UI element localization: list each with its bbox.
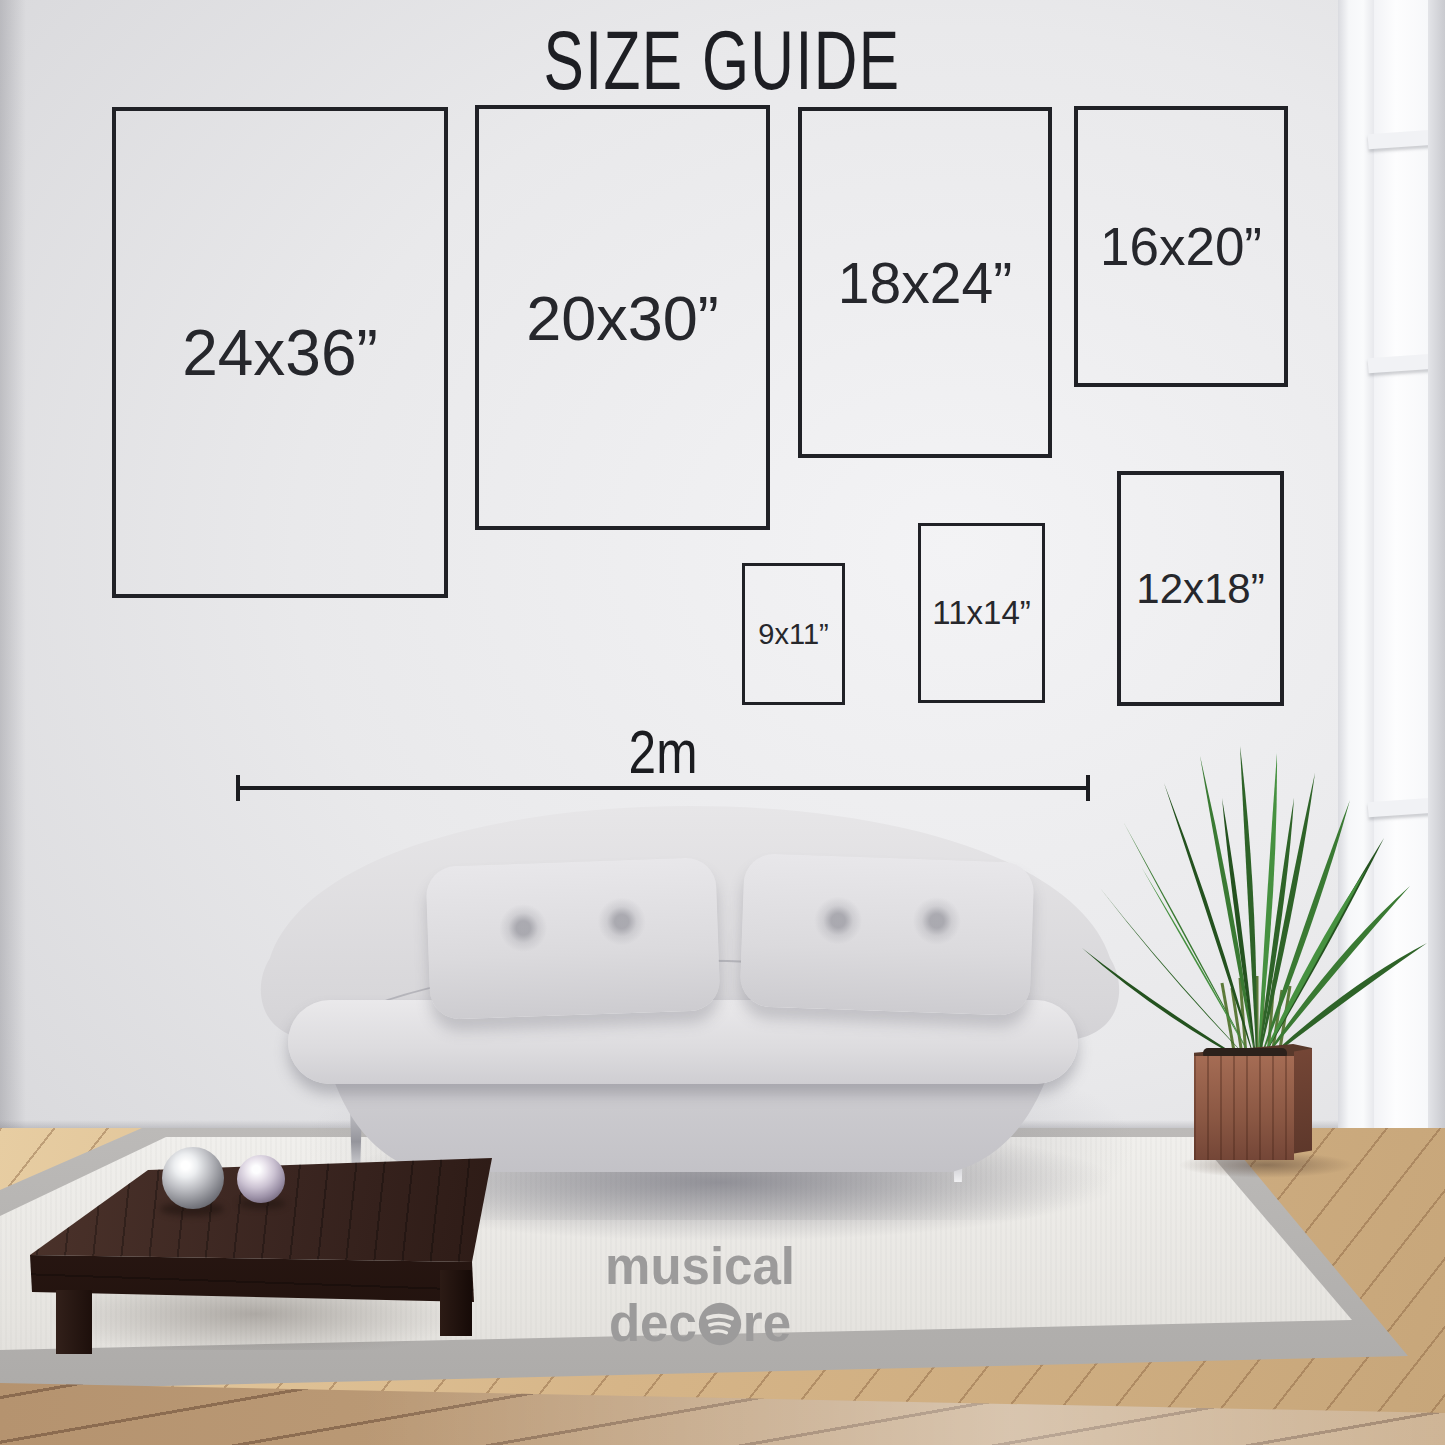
size-label-20x30: 20x30” (526, 282, 719, 354)
table-leg (56, 1290, 92, 1354)
spotify-icon (697, 1301, 743, 1347)
sofa-pillow-left (425, 857, 720, 1020)
brand-word-decore-prefix: dec (609, 1295, 697, 1352)
size-frame-11x14: 11x14” (918, 523, 1045, 703)
scale-bar-label: 2m (236, 716, 1090, 787)
size-label-12x18: 12x18” (1136, 565, 1264, 613)
size-label-18x24: 18x24” (838, 250, 1012, 316)
brand-logo: musical dec re (450, 1240, 950, 1350)
size-frame-18x24: 18x24” (798, 107, 1052, 458)
size-frame-24x36: 24x36” (112, 107, 448, 598)
wall-left-corner-shading (0, 0, 26, 1130)
planter-box-side (1294, 1048, 1312, 1153)
planter-box (1194, 1056, 1294, 1160)
size-frame-9x11: 9x11” (742, 563, 845, 705)
brand-word-musical: musical (450, 1240, 950, 1293)
brand-word-decore-suffix: re (743, 1295, 791, 1352)
size-guide-poster: SIZE GUIDE 24x36” 20x30” 18x24” 16x20” 9… (0, 0, 1445, 1445)
size-label-24x36: 24x36” (182, 316, 378, 390)
glass-ball-small (237, 1155, 285, 1203)
size-frame-16x20: 16x20” (1074, 106, 1288, 387)
sofa-pillow-right (739, 853, 1034, 1016)
glass-ball-large (162, 1147, 224, 1209)
brand-word-decore: dec re (450, 1297, 950, 1350)
size-label-16x20: 16x20” (1100, 216, 1262, 277)
size-frame-20x30: 20x30” (475, 105, 770, 530)
size-label-11x14: 11x14” (932, 594, 1030, 632)
size-frame-12x18: 12x18” (1117, 471, 1284, 706)
size-label-9x11: 9x11” (758, 618, 828, 651)
